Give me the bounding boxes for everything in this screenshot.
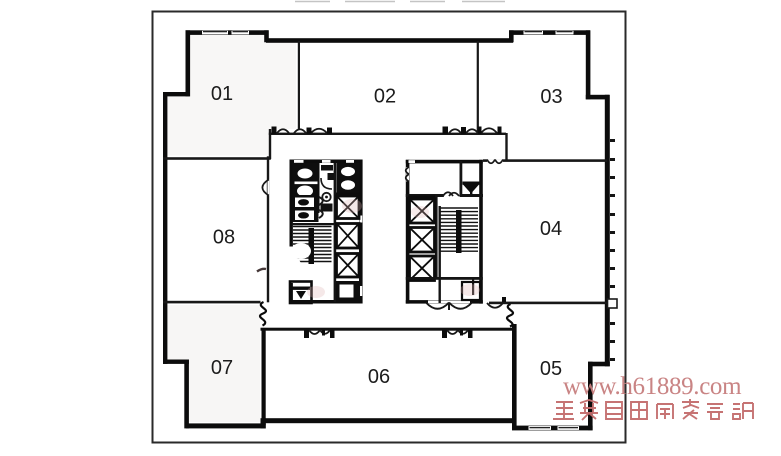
- svg-text:08: 08: [213, 227, 235, 249]
- svg-text:www.h61889.com: www.h61889.com: [563, 373, 742, 400]
- svg-text:01: 01: [211, 83, 233, 105]
- svg-text:05: 05: [540, 358, 562, 380]
- svg-text:03: 03: [540, 86, 562, 108]
- svg-text:04: 04: [540, 218, 562, 240]
- svg-text:06: 06: [368, 366, 390, 388]
- svg-text:02: 02: [374, 86, 396, 108]
- svg-text:07: 07: [211, 357, 233, 379]
